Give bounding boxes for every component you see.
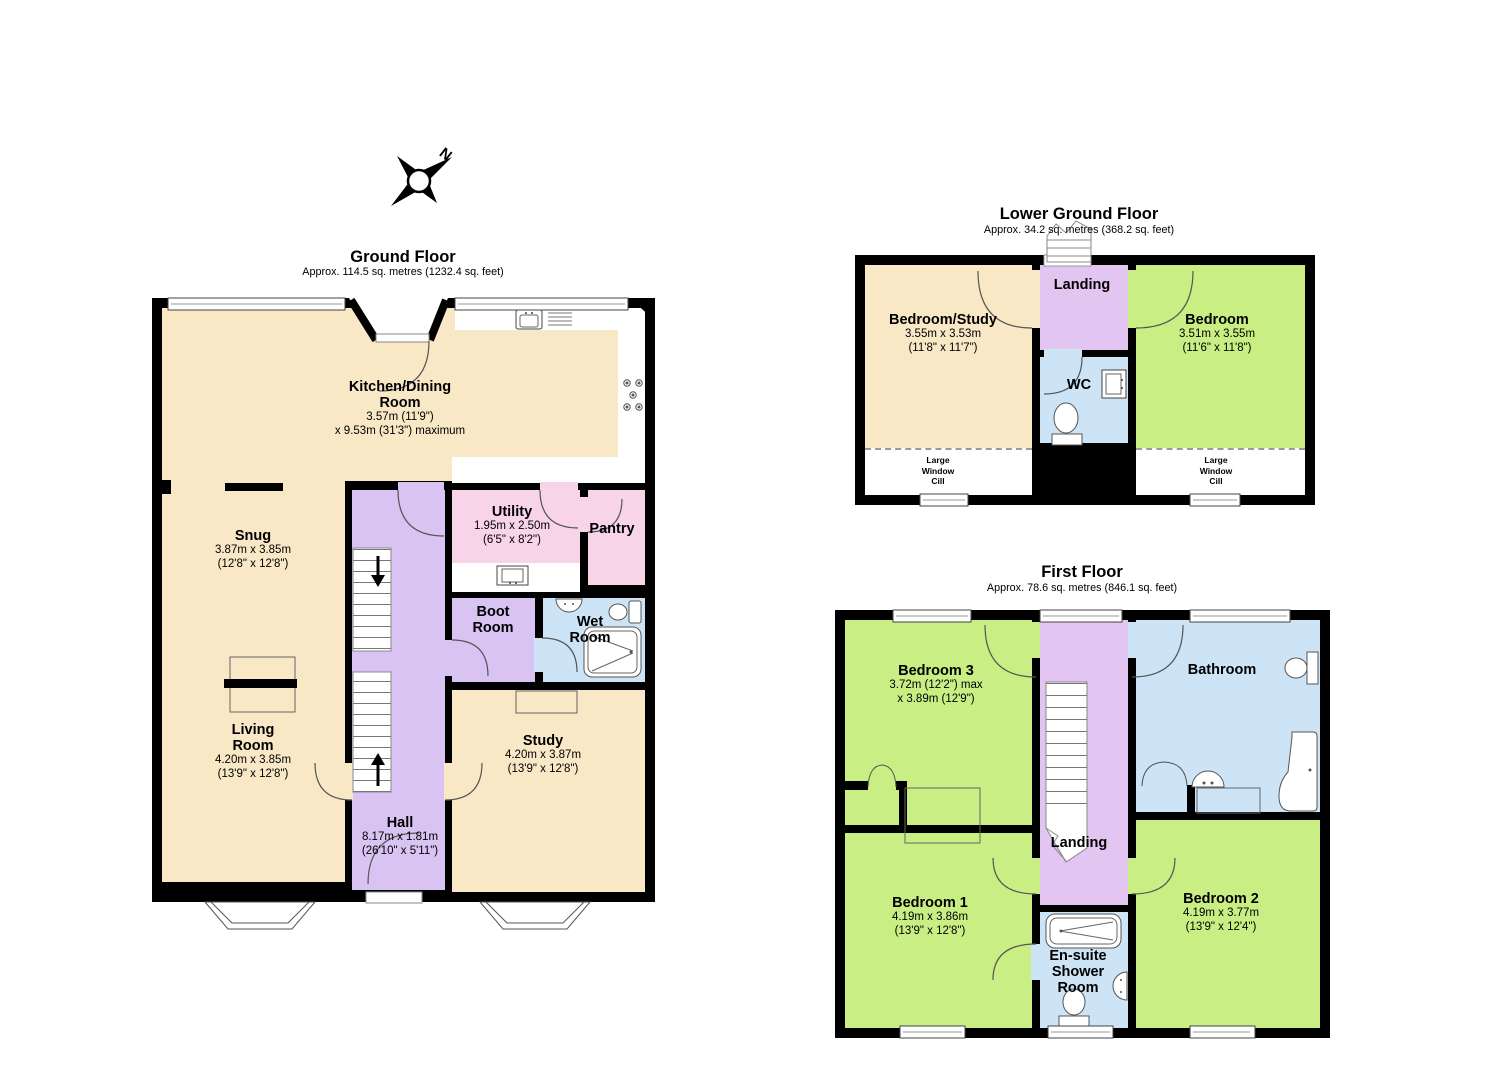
room-label-utility: Utility 1.95m x 2.50m (6'5" x 8'2") xyxy=(474,504,550,547)
room-label-boot-room: Boot Room xyxy=(467,604,519,636)
room-bedroom-study xyxy=(865,265,1032,448)
lower-ground-floor-title: Lower Ground Floor xyxy=(1000,205,1159,224)
room-label-bedroom3: Bedroom 3 3.72m (12'2") max x 3.89m (12'… xyxy=(889,663,982,706)
room-label-snug: Snug 3.87m x 3.85m (12'8" x 12'8") xyxy=(215,528,291,571)
bay-window xyxy=(205,902,590,929)
room-ff-landing xyxy=(1040,620,1128,905)
room-label-ff-landing: Landing xyxy=(1051,835,1107,851)
room-bathroom xyxy=(1136,620,1320,812)
room-label-living-room: Living Room 4.20m x 3.85m (13'9" x 12'8"… xyxy=(215,722,291,782)
room-label-wc: WC xyxy=(1067,377,1091,393)
room-bedroom3 xyxy=(845,620,1032,825)
room-label-kitchen-dining: Kitchen/Dining Room 3.57m (11'9") x 9.53… xyxy=(335,379,465,439)
room-lgf-bedroom xyxy=(1136,265,1305,448)
compass-north-label: N xyxy=(436,144,455,164)
room-label-lgf-landing: Landing xyxy=(1054,277,1110,293)
ground-floor-subtitle: Approx. 114.5 sq. metres (1232.4 sq. fee… xyxy=(302,266,503,278)
lower-ground-floor-subtitle: Approx. 34.2 sq. metres (368.2 sq. feet) xyxy=(984,224,1174,236)
floorplan-page: Ground Floor Approx. 114.5 sq. metres (1… xyxy=(0,0,1485,1080)
label-large-window-cill-left: Large Window Cill xyxy=(914,455,962,487)
first-floor-title: First Floor xyxy=(1041,563,1123,582)
room-label-bathroom: Bathroom xyxy=(1188,662,1256,678)
room-study xyxy=(452,690,645,892)
room-label-bedroom1: Bedroom 1 4.19m x 3.86m (13'9" x 12'8") xyxy=(892,895,968,938)
wall-stub-left xyxy=(162,480,171,494)
room-label-bedroom-study: Bedroom/Study 3.55m x 3.53m (11'8" x 11'… xyxy=(889,312,997,355)
room-snug-living-area xyxy=(162,308,345,882)
room-wc xyxy=(1040,357,1128,443)
label-large-window-cill-right: Large Window Cill xyxy=(1192,455,1240,487)
room-label-pantry: Pantry xyxy=(589,521,634,537)
first-floor-subtitle: Approx. 78.6 sq. metres (846.1 sq. feet) xyxy=(987,582,1177,594)
room-label-ensuite: En-suite Shower Room xyxy=(1038,948,1118,997)
room-label-hall: Hall 8.17m x 1.81m (26'10" x 5'11") xyxy=(362,815,438,858)
wall-stub-snug xyxy=(225,483,283,491)
room-pantry xyxy=(588,490,645,585)
room-label-study: Study 4.20m x 3.87m (13'9" x 12'8") xyxy=(505,733,581,776)
room-label-bedroom2: Bedroom 2 4.19m x 3.77m (13'9" x 12'4") xyxy=(1183,891,1259,934)
room-label-wet-room: Wet Room xyxy=(564,614,616,646)
room-label-lgf-bedroom: Bedroom 3.51m x 3.55m (11'6" x 11'8") xyxy=(1179,312,1255,355)
ground-floor-title: Ground Floor xyxy=(350,248,455,267)
